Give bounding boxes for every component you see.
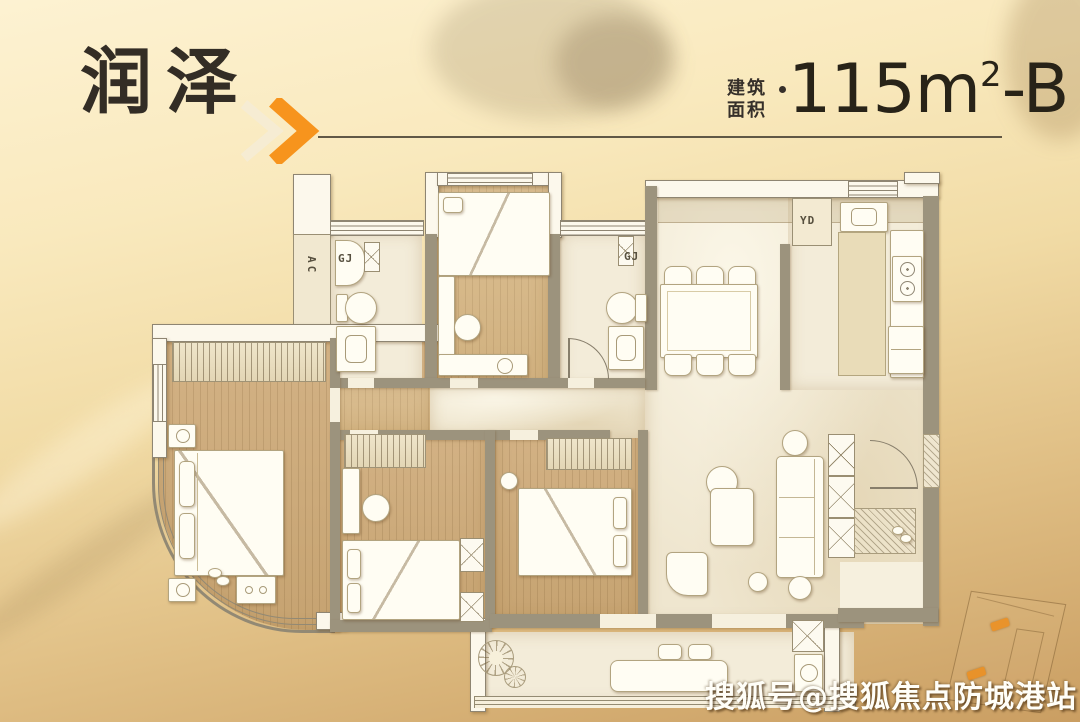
kitchen-island — [838, 232, 886, 376]
nightstand — [168, 578, 196, 602]
background-smudge — [555, 15, 675, 110]
window — [560, 220, 647, 236]
header-rule-line — [318, 136, 1002, 138]
plan-title: 润泽 — [80, 46, 252, 118]
desk — [342, 468, 360, 534]
bedside-cabinet — [460, 592, 484, 622]
burner — [900, 281, 915, 296]
chair — [454, 314, 481, 341]
floor-lamp — [748, 572, 768, 592]
wall — [838, 608, 938, 622]
dining-chair — [664, 354, 692, 376]
wall — [923, 196, 939, 626]
door-gap — [510, 430, 538, 440]
area-label-line2: 面积 — [727, 100, 767, 122]
utility-cabinet — [792, 620, 824, 652]
slipper — [216, 576, 230, 586]
map-road-line — [977, 596, 1055, 616]
wardrobe — [344, 434, 426, 468]
pillow — [179, 513, 195, 559]
pillow — [347, 583, 361, 613]
wall — [293, 174, 331, 236]
bed — [342, 540, 460, 620]
shoe-cabinet — [828, 434, 855, 476]
gj-label: GJ — [338, 252, 353, 265]
sliding-door-gap — [712, 614, 786, 628]
door-mat — [854, 508, 916, 554]
door-gap — [568, 378, 594, 388]
sofa-cushion-line — [779, 497, 815, 498]
yd-label: YD — [800, 214, 815, 227]
armchair — [666, 552, 708, 596]
pillow — [347, 549, 361, 579]
plant — [504, 666, 526, 688]
wall — [645, 186, 657, 390]
entry-door-leaf — [870, 487, 917, 489]
bed — [438, 192, 550, 276]
pillow — [613, 535, 627, 567]
door-gap — [330, 388, 340, 422]
pillow — [443, 197, 463, 213]
slipper — [900, 534, 912, 543]
window — [152, 364, 167, 422]
bullet-dot — [779, 86, 786, 93]
floor-plan: AC — [148, 172, 940, 718]
door-leaf — [568, 338, 570, 378]
chevron-icon — [236, 98, 332, 164]
wall — [904, 172, 940, 184]
floor-entry-platform — [840, 562, 924, 608]
toilet-bowl — [345, 292, 377, 324]
area-suffix: -B — [1002, 50, 1069, 129]
shoe-cabinet — [828, 518, 855, 558]
window — [848, 180, 898, 198]
window — [330, 220, 424, 236]
shoe-cabinet — [828, 476, 855, 518]
headboard-line — [197, 453, 198, 571]
wall — [485, 430, 495, 628]
bed — [518, 488, 632, 576]
sofa — [776, 456, 824, 578]
wall — [152, 324, 440, 342]
wall — [780, 244, 790, 390]
dining-chair — [696, 354, 724, 376]
wall — [425, 234, 437, 380]
balcony-stool — [688, 644, 712, 660]
sliding-door-gap — [600, 614, 656, 628]
lamp — [500, 472, 518, 490]
window — [447, 172, 533, 186]
area-label-line1: 建筑 — [727, 78, 767, 100]
pillow — [179, 461, 195, 507]
dining-table — [660, 284, 758, 358]
bedside-cabinet — [460, 538, 484, 572]
toilet-tank — [635, 294, 647, 322]
watermark: 搜狐号@搜狐焦点防城港站 — [705, 672, 1077, 716]
stove — [892, 256, 922, 302]
area-unit: m — [915, 50, 980, 129]
ac-label: AC — [305, 256, 318, 275]
gj-label: GJ — [624, 250, 639, 263]
wall — [638, 430, 648, 614]
balcony-stool — [658, 644, 682, 660]
area-number: 115 — [788, 50, 915, 129]
fridge — [888, 326, 924, 374]
door-gap — [348, 378, 374, 388]
wall — [330, 338, 340, 632]
sink-vanity — [336, 326, 376, 372]
nightstand — [168, 424, 196, 448]
toilet-bowl — [606, 292, 638, 324]
entry-door-opening — [923, 434, 940, 488]
dining-chair — [728, 354, 756, 376]
door-gap — [450, 378, 478, 388]
sofa-cushion-line — [779, 537, 815, 538]
desk — [438, 276, 455, 356]
sink-vanity — [608, 326, 644, 370]
desk — [438, 354, 528, 376]
area-exponent: 2 — [980, 55, 1002, 95]
area-label: 建筑 面积 — [727, 78, 767, 122]
pillow — [613, 497, 627, 529]
highlighted-building — [990, 617, 1010, 631]
area-value: 115m2-B — [788, 56, 1068, 124]
coffee-table — [710, 488, 754, 546]
burner — [900, 262, 915, 277]
kitchen-sink — [840, 202, 888, 232]
chair — [362, 494, 390, 522]
side-table — [788, 576, 812, 600]
ac-niche — [293, 234, 331, 328]
sofa-back-line — [814, 459, 815, 575]
wall — [330, 378, 645, 388]
wardrobe — [172, 342, 326, 382]
side-table — [782, 430, 808, 456]
wardrobe — [546, 438, 632, 470]
shaft-hatch — [364, 242, 380, 272]
bed — [174, 450, 284, 576]
dresser — [236, 576, 276, 604]
